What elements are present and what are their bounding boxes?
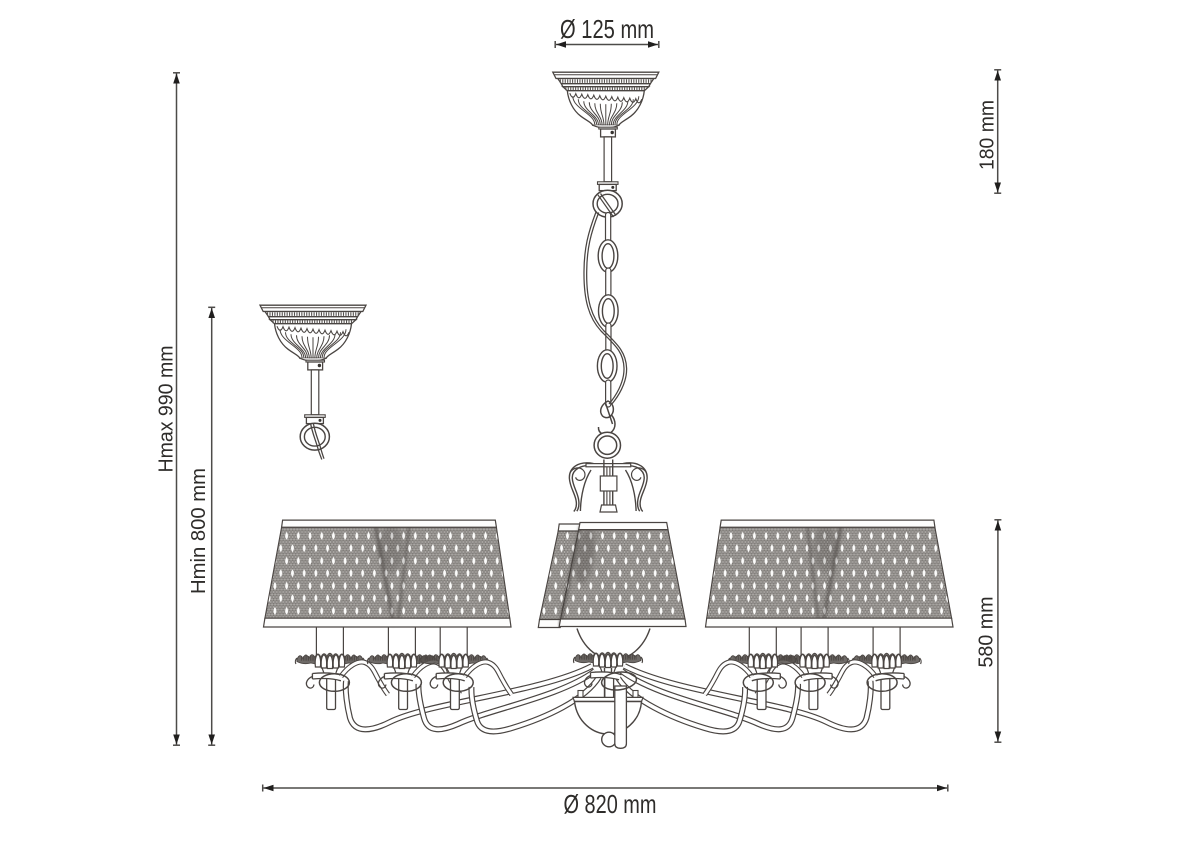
svg-text:580 mm: 580 mm (976, 597, 998, 668)
svg-text:Hmax 990 mm: Hmax 990 mm (156, 346, 178, 473)
svg-text:180 mm: 180 mm (977, 100, 999, 170)
svg-text:Ø 820 mm: Ø 820 mm (564, 789, 657, 819)
svg-text:Hmin 800 mm: Hmin 800 mm (188, 468, 210, 594)
svg-text:Ø 125 mm: Ø 125 mm (560, 14, 654, 44)
